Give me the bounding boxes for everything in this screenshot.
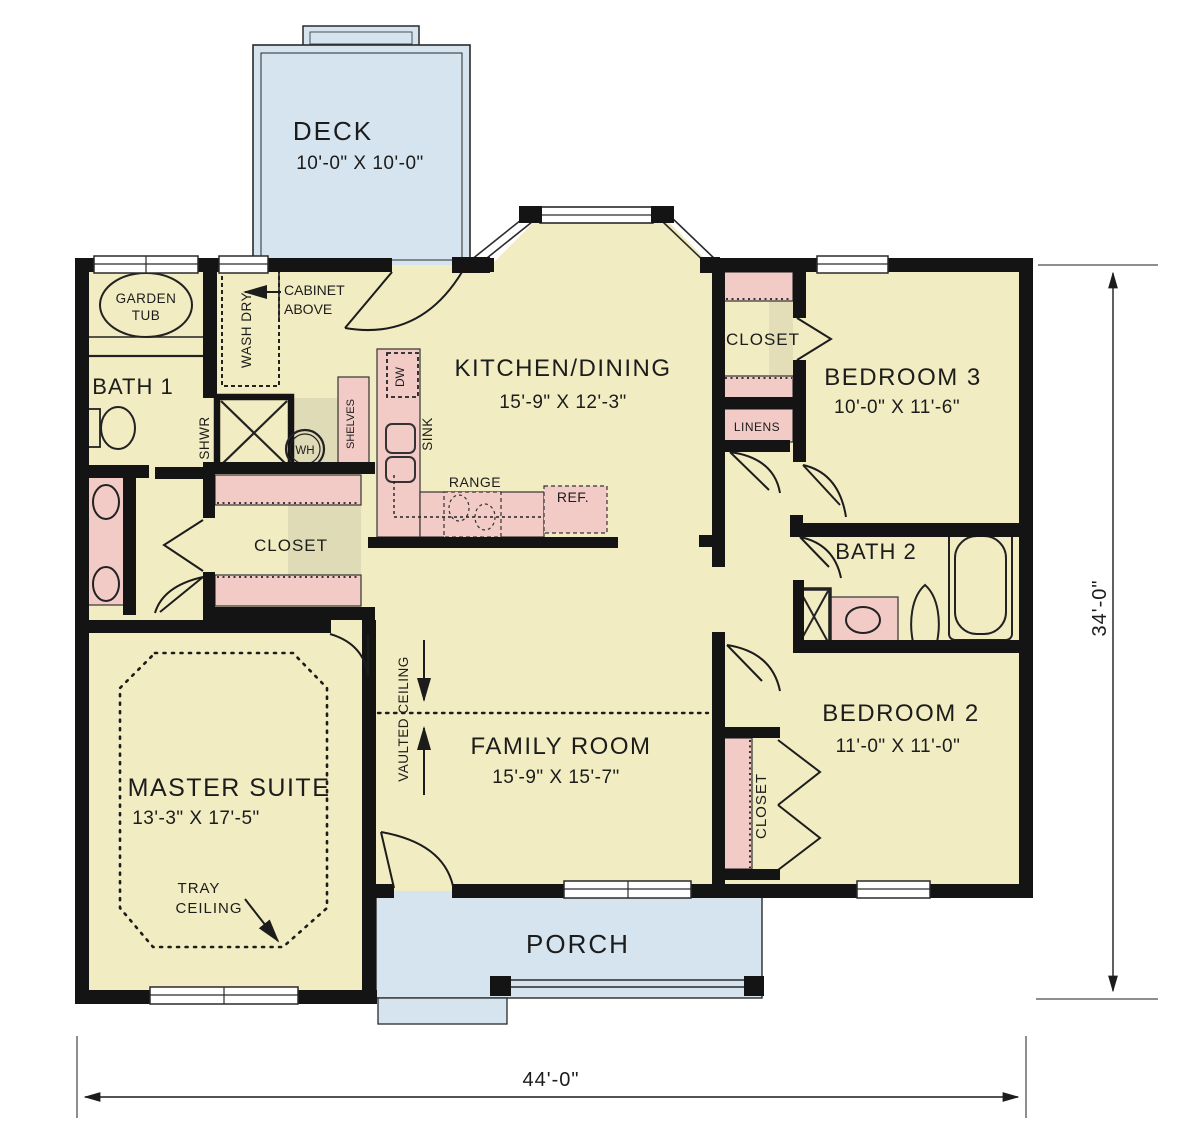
closet-shelf bbox=[723, 738, 752, 869]
master-suite-dims: 13'-3" X 17'-5" bbox=[132, 808, 260, 829]
master-suite-label: MASTER SUITE bbox=[128, 774, 331, 802]
deck-dims: 10'-0" X 10'-0" bbox=[296, 153, 424, 174]
bedroom2-label: BEDROOM 2 bbox=[822, 700, 980, 727]
window-bedroom2 bbox=[857, 881, 930, 898]
sink-bowl bbox=[386, 457, 415, 482]
kitchen-dims: 15'-9" X 12'-3" bbox=[499, 392, 627, 413]
family-room-dims: 15'-9" X 15'-7" bbox=[492, 767, 620, 788]
family-room-label: FAMILY ROOM bbox=[471, 733, 652, 760]
bedroom2-closet-label: CLOSET bbox=[753, 773, 770, 839]
window-utility bbox=[219, 256, 268, 273]
width-dimension-label: 44'-0" bbox=[523, 1069, 580, 1091]
tray-ceiling-label-1: TRAY bbox=[178, 880, 221, 897]
closet-shelf bbox=[215, 475, 361, 505]
bedroom3-label: BEDROOM 3 bbox=[824, 364, 982, 391]
window-bath1 bbox=[94, 256, 198, 273]
linens-label: LINENS bbox=[734, 420, 780, 434]
garden-tub-label-2: TUB bbox=[132, 308, 161, 323]
cabinet-label-1: CABINET bbox=[284, 282, 345, 298]
floor-plan-page: DECK 10'-0" X 10'-0" KITCHEN/DINING 15'-… bbox=[0, 0, 1200, 1142]
kitchen-label: KITCHEN/DINING bbox=[454, 355, 671, 382]
window-family bbox=[564, 881, 691, 898]
bedroom3-closet-label: CLOSET bbox=[726, 330, 800, 349]
closet-shelf bbox=[724, 272, 793, 301]
porch-label: PORCH bbox=[526, 929, 630, 959]
sink-label: SINK bbox=[420, 417, 435, 451]
range-box bbox=[444, 492, 501, 537]
cabinet-label-2: ABOVE bbox=[284, 301, 332, 317]
bedroom2-dims: 11'-0" X 11'-0" bbox=[836, 736, 961, 757]
floor-plan-canvas: DECK 10'-0" X 10'-0" KITCHEN/DINING 15'-… bbox=[0, 0, 1200, 1142]
dimension-width: 44'-0" bbox=[77, 1036, 1026, 1118]
deck bbox=[253, 26, 470, 266]
bath2-label: BATH 2 bbox=[835, 539, 916, 564]
bath1-label: BATH 1 bbox=[92, 374, 173, 399]
bath2-vanity bbox=[829, 597, 898, 644]
shower-label: SHWR bbox=[197, 416, 212, 459]
vaulted-ceiling-label: VAULTED CEILING bbox=[396, 656, 411, 782]
shelves-label: SHELVES bbox=[345, 399, 357, 449]
washer-dryer-label: WASH DRY bbox=[239, 292, 254, 368]
water-heater-label: WH bbox=[295, 445, 314, 457]
refrigerator-label: REF. bbox=[557, 489, 589, 505]
garden-tub-label-1: GARDEN bbox=[116, 291, 177, 306]
window-master bbox=[150, 987, 298, 1004]
closet-shelf bbox=[215, 575, 361, 606]
dimension-depth: 34'-0" bbox=[1036, 265, 1158, 999]
tray-ceiling-label-2: CEILING bbox=[175, 900, 242, 917]
depth-dimension-label: 34'-0" bbox=[1089, 580, 1111, 637]
window-bedroom3 bbox=[817, 256, 888, 273]
deck-label: DECK bbox=[293, 116, 373, 146]
range-label: RANGE bbox=[449, 474, 501, 490]
dishwasher-label: DW bbox=[393, 366, 407, 387]
bedroom3-dims: 10'-0" X 11'-6" bbox=[834, 397, 960, 418]
hall-closet-label: CLOSET bbox=[254, 536, 328, 555]
sink-bowl bbox=[386, 424, 415, 453]
